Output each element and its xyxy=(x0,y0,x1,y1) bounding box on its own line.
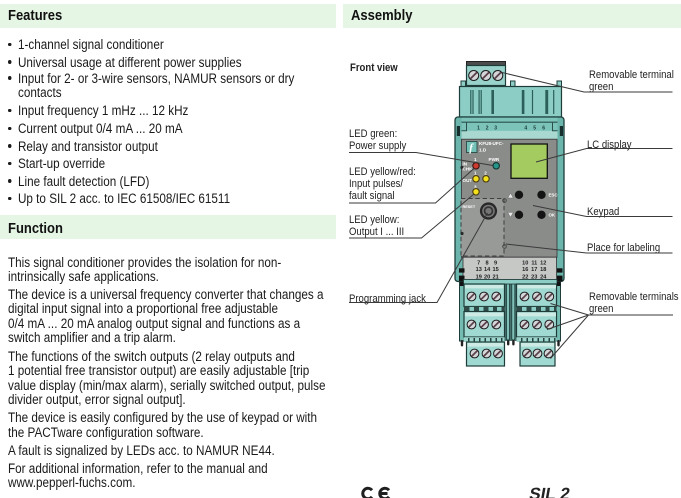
svg-text:10: 10 xyxy=(522,261,528,267)
svg-text:OK: OK xyxy=(549,213,556,218)
svg-text:3: 3 xyxy=(494,125,497,131)
svg-text:12: 12 xyxy=(540,261,546,267)
svg-text:9: 9 xyxy=(494,261,497,267)
svg-text:4: 4 xyxy=(524,125,527,131)
svg-text:OUT: OUT xyxy=(463,178,473,183)
svg-text:16: 16 xyxy=(522,267,528,273)
svg-text:KFU8-UFC-: KFU8-UFC- xyxy=(479,141,504,146)
svg-text:SIL 2: SIL 2 xyxy=(528,484,572,498)
svg-text:14: 14 xyxy=(484,267,491,273)
svg-text:11: 11 xyxy=(531,261,537,267)
svg-text:7: 7 xyxy=(477,261,480,267)
svg-text:1: 1 xyxy=(477,125,480,131)
svg-text:6: 6 xyxy=(542,125,545,131)
svg-text:18: 18 xyxy=(540,267,546,273)
svg-text:RESET: RESET xyxy=(463,205,476,209)
svg-text:17: 17 xyxy=(531,267,537,273)
svg-text:1.D: 1.D xyxy=(479,148,487,153)
svg-text:5: 5 xyxy=(533,125,536,131)
svg-text:1: 1 xyxy=(474,171,477,176)
svg-text:ESC: ESC xyxy=(549,193,559,198)
svg-text:2: 2 xyxy=(486,125,489,131)
svg-text:15: 15 xyxy=(492,267,498,273)
svg-text:PWR: PWR xyxy=(489,157,500,162)
svg-text:13: 13 xyxy=(476,267,482,273)
svg-text:1: 1 xyxy=(474,157,477,162)
svg-text:8: 8 xyxy=(486,261,489,267)
svg-text:2: 2 xyxy=(484,171,487,176)
